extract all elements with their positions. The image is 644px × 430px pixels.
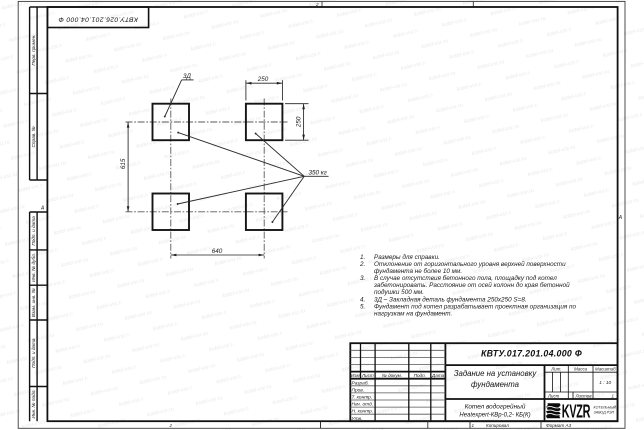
svg-text:250: 250: [257, 76, 269, 83]
svg-text:забетонировать. Расстояние от: забетонировать. Расстояние от осей колон…: [373, 281, 570, 289]
svg-text:Подп. и дата: Подп. и дата: [31, 338, 36, 368]
svg-text:Подп. и дата: Подп. и дата: [31, 216, 36, 246]
svg-text:Нач. отд.: Нач. отд.: [352, 402, 374, 408]
svg-text:Инв. № подл.: Инв. № подл.: [31, 389, 36, 418]
svg-text:2.: 2.: [359, 261, 365, 268]
svg-text:№ докум.: № докум.: [382, 373, 402, 378]
svg-text:нагрузкам на фундамент.: нагрузкам на фундамент.: [374, 309, 452, 317]
svg-text:1: 1: [472, 423, 475, 428]
svg-text:Фундамент под котел разрабатыв: Фундамент под котел разрабатывает проект…: [374, 302, 577, 310]
svg-text:А: А: [40, 206, 45, 212]
svg-text:Масса: Масса: [574, 366, 588, 371]
svg-text:250: 250: [296, 116, 303, 128]
svg-text:Heatexpert-КВр-0,2- КБ(К): Heatexpert-КВр-0,2- КБ(К): [459, 413, 530, 419]
svg-text:Копировал: Копировал: [486, 423, 509, 428]
svg-text:1.: 1.: [360, 254, 365, 261]
svg-text:ЗАВОД РЭП: ЗАВОД РЭП: [594, 410, 615, 414]
svg-text:Дата: Дата: [431, 373, 445, 378]
svg-text:Разраб.: Разраб.: [352, 380, 369, 386]
svg-text:А: А: [618, 215, 623, 221]
svg-text:Инв. № дубл.: Инв. № дубл.: [31, 253, 36, 282]
svg-text:Формат А3: Формат А3: [546, 423, 572, 428]
svg-text:Утв.: Утв.: [352, 416, 363, 422]
svg-text:Н. контр.: Н. контр.: [352, 409, 374, 415]
svg-text:Лист: Лист: [361, 373, 374, 378]
svg-text:Масштаб: Масштаб: [595, 366, 616, 371]
svg-text:615: 615: [120, 158, 127, 169]
svg-text:3Д – Закладная деталь фундамен: 3Д – Закладная деталь фундамента 250х250…: [374, 295, 527, 303]
svg-text:фундамента: фундамента: [471, 380, 520, 389]
svg-text:В случае отсутствия бетонного: В случае отсутствия бетонного пола, площ…: [374, 274, 557, 282]
svg-text:Лист: Лист: [547, 393, 560, 398]
svg-text:КОТЕЛЬНЫЙ: КОТЕЛЬНЫЙ: [594, 406, 617, 410]
svg-text:4.: 4.: [360, 296, 365, 303]
svg-text:640: 640: [212, 248, 223, 255]
svg-text:Размеры для справки.: Размеры для справки.: [374, 253, 440, 261]
svg-text:3.: 3.: [360, 275, 365, 282]
svg-text:350 кг: 350 кг: [309, 169, 327, 176]
svg-text:Пров.: Пров.: [352, 387, 365, 393]
svg-text:Перв. примен.: Перв. примен.: [31, 34, 36, 65]
svg-text:подушки 500 мм.: подушки 500 мм.: [374, 288, 424, 296]
svg-text:Изм: Изм: [351, 373, 360, 378]
svg-text:Справ. №: Справ. №: [31, 126, 36, 147]
svg-text:KVZR: KVZR: [562, 401, 591, 422]
svg-text:3Д: 3Д: [183, 73, 192, 80]
svg-text:2: 2: [169, 423, 173, 428]
svg-text:2: 2: [315, 2, 319, 7]
svg-text:5.: 5.: [360, 303, 365, 310]
svg-text:Листов: Листов: [575, 393, 593, 398]
svg-text:КВТУ.017.201.04.000 Ф: КВТУ.017.201.04.000 Ф: [481, 349, 582, 359]
svg-text:Т. контр.: Т. контр.: [352, 395, 373, 401]
svg-text:1 : 10: 1 : 10: [599, 380, 611, 386]
svg-text:Взам. инв. №: Взам. инв. №: [31, 288, 36, 317]
svg-text:фундамента не более 10 мм.: фундамента не более 10 мм.: [374, 267, 462, 275]
svg-text:Лит.: Лит.: [550, 366, 561, 371]
svg-text:КВТУ.026.201.04.000 Ф: КВТУ.026.201.04.000 Ф: [58, 16, 138, 23]
svg-text:Подп.: Подп.: [414, 373, 426, 378]
svg-text:Отклонение от горизонтального: Отклонение от горизонтального уровня вер…: [374, 260, 566, 268]
svg-text:Котел водогрейный: Котел водогрейный: [465, 402, 526, 410]
svg-text:Задание на установку: Задание на установку: [454, 369, 538, 378]
